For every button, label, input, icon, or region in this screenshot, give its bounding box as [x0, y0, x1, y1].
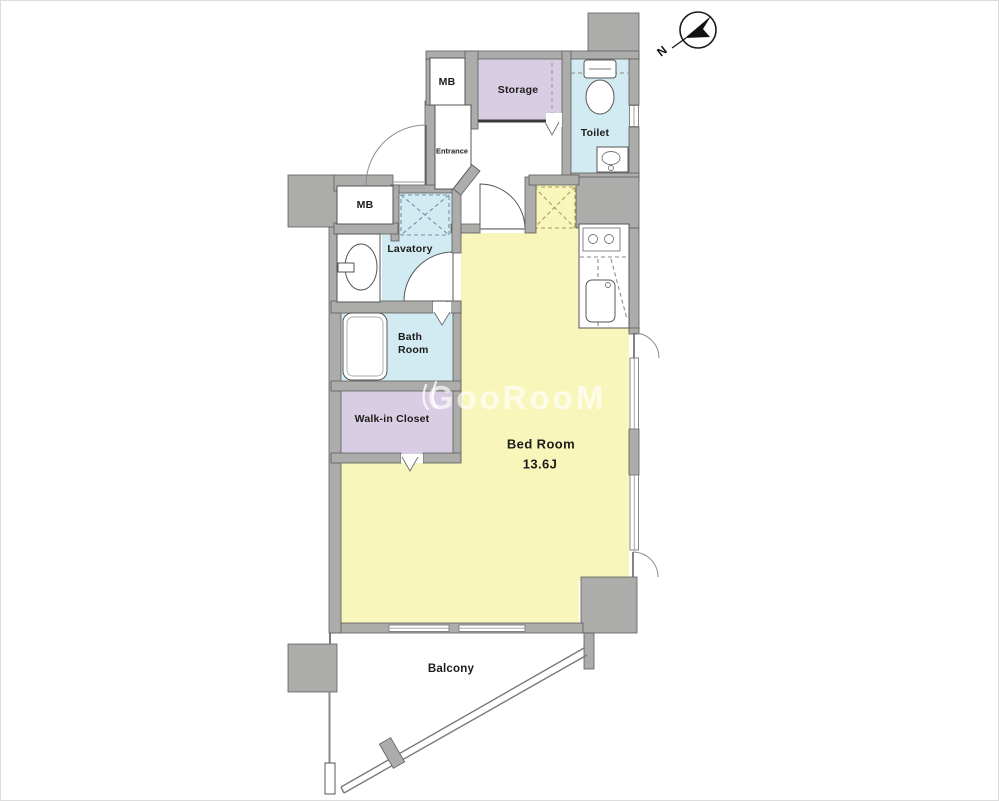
window-balcony-right	[459, 625, 525, 632]
window-right-upper	[630, 358, 639, 429]
watermark-text: GooRooM	[428, 379, 607, 417]
label-balcony: Balcony	[428, 663, 474, 675]
storage-door-mark	[545, 122, 559, 135]
vanity-counter	[338, 263, 354, 272]
label-bedroom-size: 13.6J	[523, 457, 558, 472]
compass-north-label: N	[654, 43, 669, 59]
label-bath-line2: Room	[398, 344, 429, 357]
label-entrance: Entrance	[436, 147, 468, 156]
label-bath-room: Bath Room	[398, 331, 429, 357]
bath-door-gap	[433, 302, 451, 313]
label-mb-left: MB	[357, 199, 374, 211]
window-right-lower	[630, 475, 639, 550]
label-toilet: Toilet	[581, 127, 609, 139]
bathtub	[343, 313, 387, 380]
window-toilet	[630, 106, 639, 127]
toilet-bowl	[586, 80, 614, 114]
balcony-end-wall	[325, 763, 335, 794]
hall-door-swing	[480, 184, 525, 229]
window-balcony-left	[389, 625, 449, 632]
balcony-railing-cap	[341, 787, 344, 793]
label-storage: Storage	[498, 84, 539, 96]
label-bedroom: Bed Room	[507, 437, 575, 452]
floorplan-image: N MB Storage Toilet Entrance MB Lavatory…	[0, 0, 999, 801]
balcony-structure	[325, 633, 587, 794]
label-walkin-closet: Walk-in Closet	[355, 413, 430, 425]
compass-needle-tail	[672, 38, 686, 48]
door-right-upper	[634, 333, 659, 358]
label-bath-line1: Bath	[398, 331, 429, 344]
compass: N	[654, 12, 716, 59]
label-lavatory: Lavatory	[387, 243, 432, 255]
toilet-sink-counter	[597, 147, 628, 172]
door-right-lower	[633, 552, 658, 577]
kitchen-sink	[586, 280, 615, 322]
label-mb-top: MB	[439, 76, 456, 88]
balcony-railing-inner	[344, 655, 587, 793]
